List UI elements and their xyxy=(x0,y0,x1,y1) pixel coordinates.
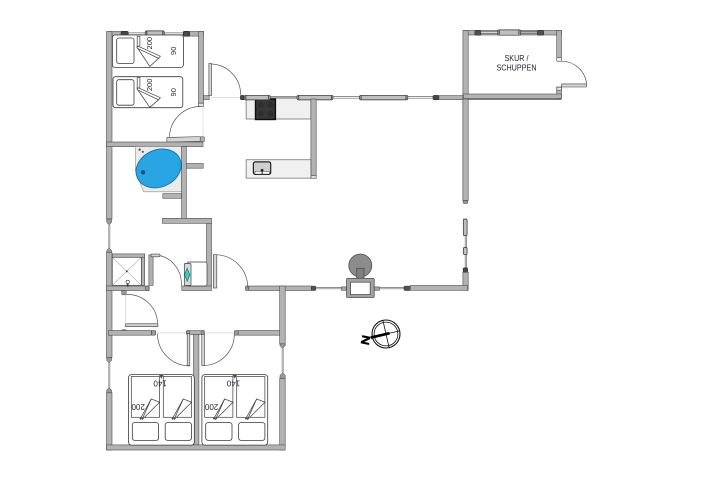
svg-text:200: 200 xyxy=(145,37,154,50)
svg-text:90: 90 xyxy=(169,47,178,55)
svg-text:200: 200 xyxy=(145,79,154,92)
svg-text:140: 140 xyxy=(153,378,167,387)
svg-text:90: 90 xyxy=(169,88,178,96)
svg-text:SCHUPPEN: SCHUPPEN xyxy=(496,63,536,73)
svg-text:SKUR /: SKUR / xyxy=(504,53,529,63)
svg-text:140: 140 xyxy=(226,378,240,387)
svg-text:200: 200 xyxy=(131,402,145,411)
svg-text:200: 200 xyxy=(204,402,218,411)
